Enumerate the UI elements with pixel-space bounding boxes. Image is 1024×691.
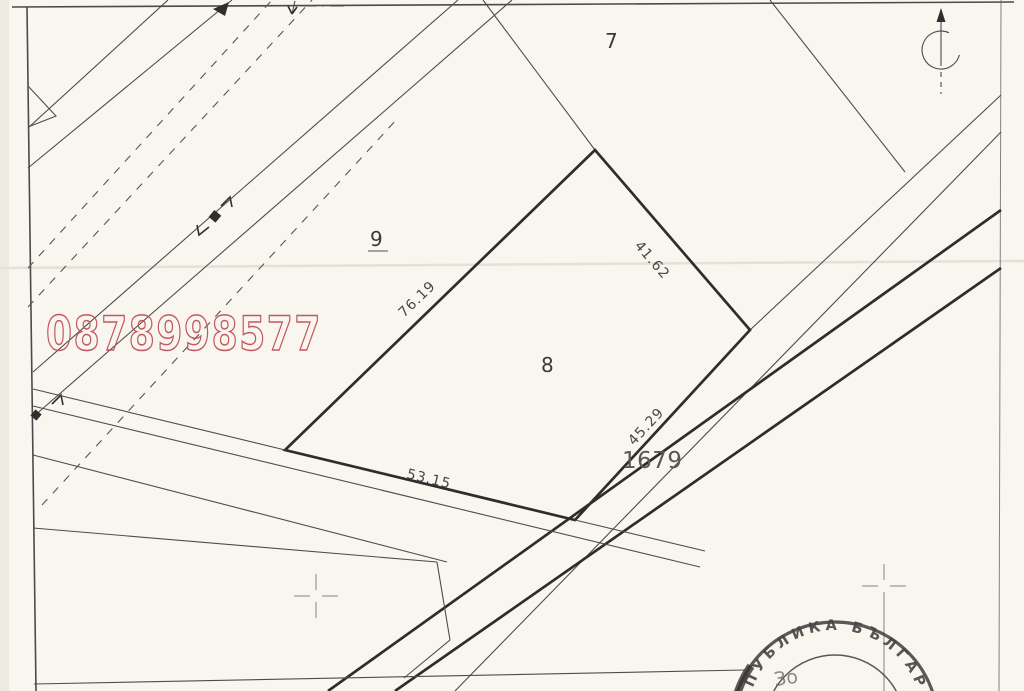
watermark-phone-number: 0878998577 [46, 307, 322, 362]
cadastral-map-canvas: 7 9 8 1679 76.19 41.62 45.29 53.15 08789… [0, 0, 1024, 691]
parcel-8-label: 8 [541, 353, 554, 377]
scan-edge-shadow [0, 0, 9, 691]
cadastral-sketch-scan: 7 9 8 1679 76.19 41.62 45.29 53.15 08789… [0, 0, 1024, 691]
parcel-7-label: 7 [605, 29, 618, 53]
stamp-inner-text: Зо [773, 666, 800, 691]
parcel-9-label: 9 [370, 227, 383, 251]
cadastral-number-label: 1679 [622, 448, 682, 474]
